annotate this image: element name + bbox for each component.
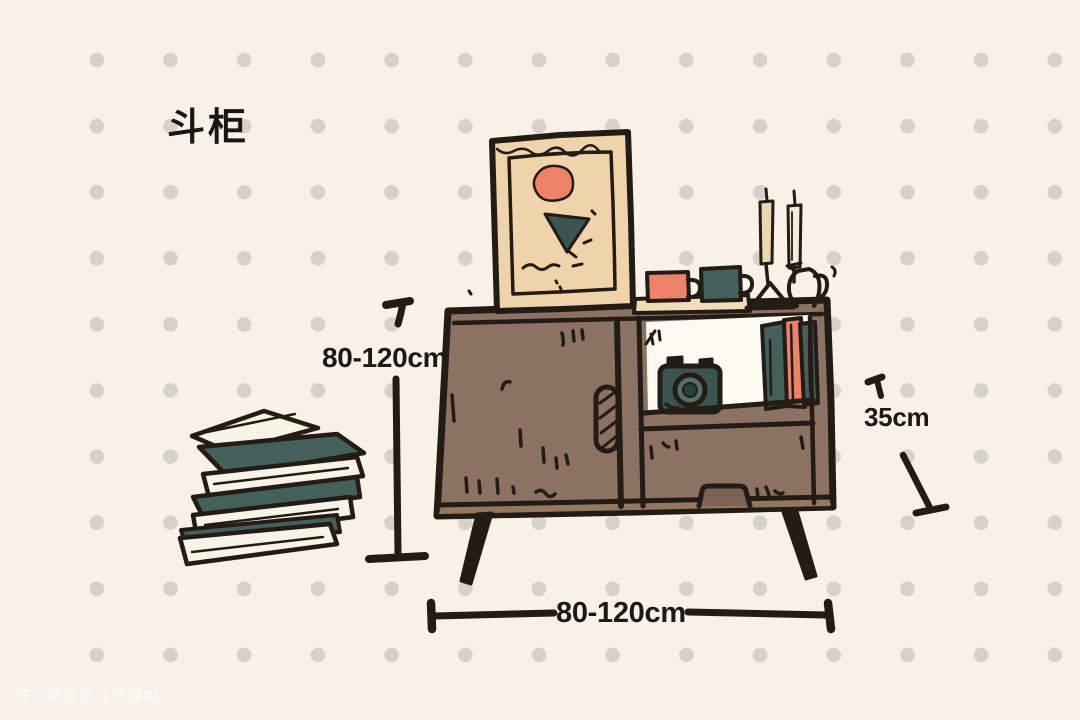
watermark: 住小帮@设计师猫姐 — [15, 684, 159, 705]
picture-frame — [492, 132, 633, 311]
coral-mug — [647, 272, 689, 301]
page-title: 斗柜 — [167, 96, 249, 151]
camera — [660, 357, 720, 412]
height-dimension-label: 80-120cm — [322, 342, 438, 374]
candlesticks — [747, 189, 801, 308]
depth-dimension-label: 35cm — [864, 402, 934, 433]
floor-book-stack — [180, 411, 364, 564]
sideboard-cabinet — [437, 291, 833, 584]
door-handle — [596, 387, 618, 451]
abstract-blob — [534, 166, 573, 201]
mugs-on-tray — [634, 267, 752, 313]
teal-mug — [701, 267, 741, 301]
sideboard-illustration — [0, 0, 1080, 720]
drawer-handle — [699, 486, 750, 506]
furniture-dimension-diagram: 斗柜 80-120cm 35cm 80-120cm 住小帮@设计师猫姐 — [0, 0, 1080, 720]
height-dimension-marks — [369, 301, 425, 559]
tapered-legs — [461, 511, 816, 584]
depth-dimension-marks — [868, 377, 946, 513]
width-dimension-label: 80-120cm — [556, 597, 678, 630]
